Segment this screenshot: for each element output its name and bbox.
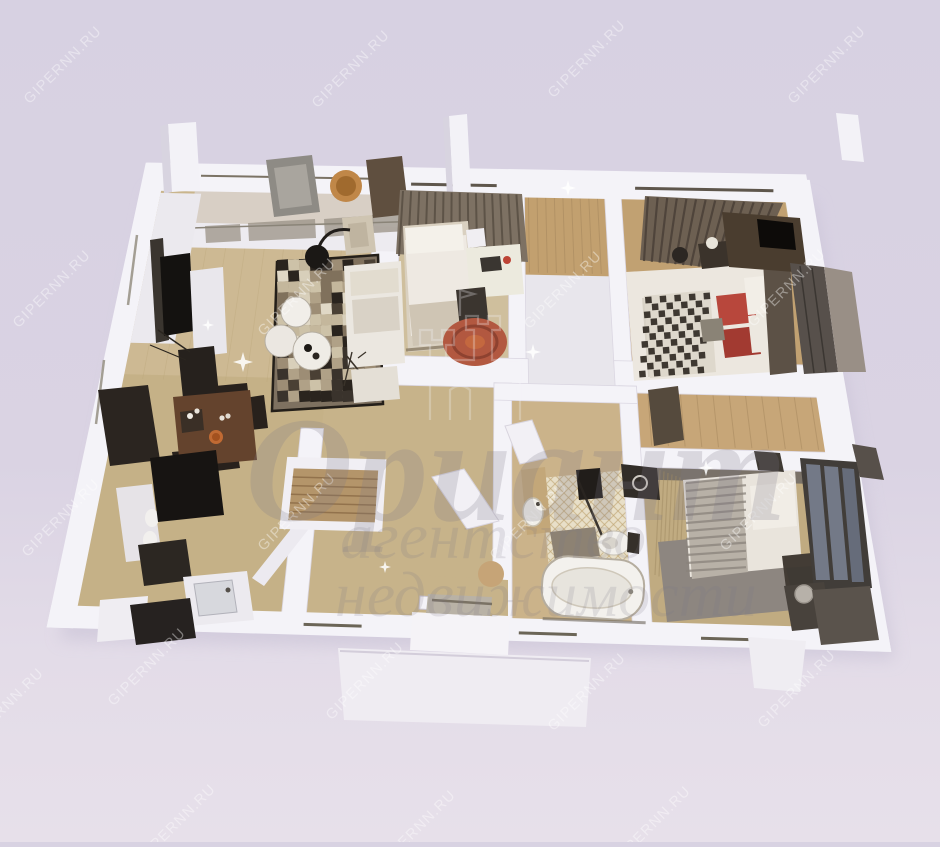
svg-text:недвижимости: недвижимости	[335, 559, 757, 630]
